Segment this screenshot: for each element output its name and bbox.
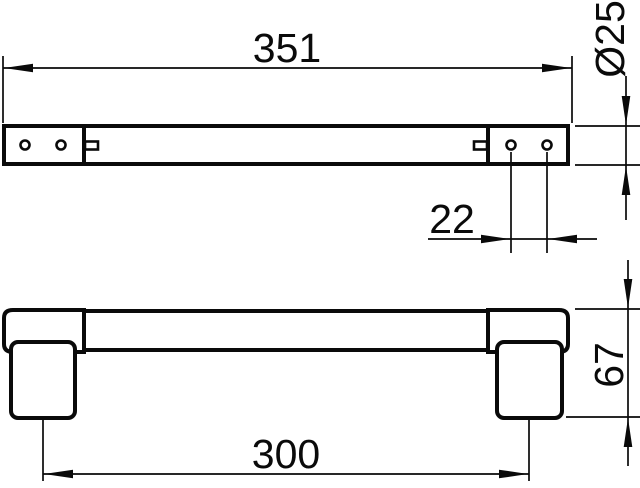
- dimension-hole-spacing: 22: [428, 152, 597, 253]
- arrowhead-up: [624, 418, 633, 447]
- front-view: [4, 310, 568, 418]
- dim-label-diameter: Ø25: [587, 0, 633, 78]
- dimension-fixing-centers: 300: [43, 419, 529, 481]
- arrowhead-right: [481, 235, 510, 244]
- arrowhead-down: [624, 279, 633, 308]
- technical-drawing-canvas: 351 Ø25 22: [0, 0, 640, 488]
- screw-hole: [57, 141, 66, 150]
- right-grub-screw-slot: [474, 142, 487, 150]
- arrowhead-left: [44, 470, 73, 479]
- dimension-overall-length: 351: [3, 25, 572, 123]
- dim-label-fixing-centers: 300: [252, 431, 320, 477]
- arrowhead-up: [622, 166, 631, 195]
- screw-hole: [21, 141, 30, 150]
- arrowhead-right: [499, 470, 528, 479]
- dimension-drawing: 351 Ø25 22: [0, 0, 640, 488]
- dim-label-overall-length: 351: [253, 25, 321, 71]
- left-grub-screw-slot: [85, 142, 98, 150]
- grip-tube-front-view: [84, 311, 488, 350]
- dimension-depth: 67: [566, 260, 640, 466]
- screw-hole: [543, 141, 552, 150]
- arrowhead-down: [622, 96, 631, 125]
- left-wall-post: [11, 342, 75, 418]
- right-wall-post: [497, 342, 562, 418]
- arrowhead-left: [548, 235, 577, 244]
- dim-label-depth: 67: [586, 342, 632, 388]
- arrowhead-right: [542, 64, 571, 73]
- arrowhead-left: [4, 64, 33, 73]
- screw-hole: [507, 141, 516, 150]
- dim-label-hole-spacing: 22: [429, 196, 475, 242]
- top-view: [4, 126, 568, 164]
- dimension-diameter: Ø25: [575, 0, 640, 220]
